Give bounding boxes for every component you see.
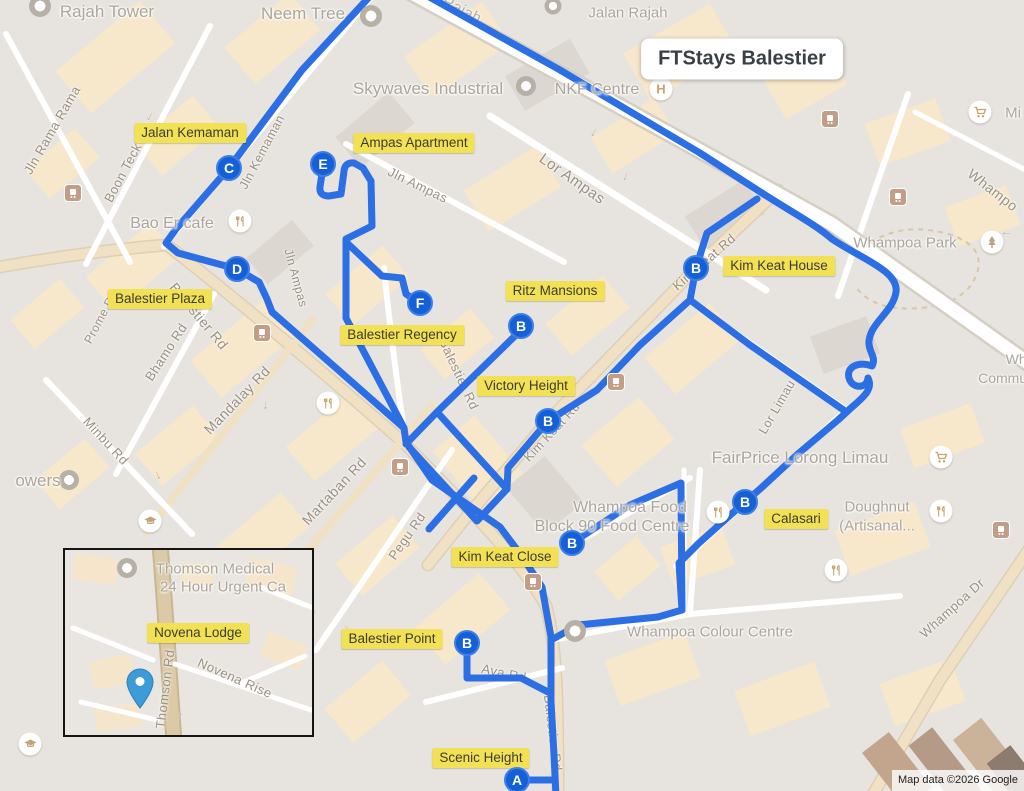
location-pin-icon[interactable] <box>125 668 155 710</box>
shopping-cart-pin-icon[interactable] <box>969 101 992 124</box>
route-marker-B-victory-height[interactable]: B <box>535 408 561 434</box>
map-canvas[interactable]: Rajah Jln Rama Rama Boon Teck Rd Jln Kem… <box>0 0 1024 791</box>
property-label-balestier-regency: Balestier Regency <box>340 325 464 345</box>
route-marker-C[interactable]: C <box>216 155 242 181</box>
poi-label-bao-er-cafe: Bao Er cafe <box>130 215 214 233</box>
restaurant-pin-icon[interactable] <box>707 501 730 524</box>
map-title-badge: FTStays Balestier <box>641 39 843 80</box>
property-label-kim-keat-close: Kim Keat Close <box>451 547 558 567</box>
route-marker-B-balestier-point[interactable]: B <box>454 630 480 656</box>
poi-label-whampoa-food-2: Block 90 Food Centre <box>535 518 690 536</box>
restaurant-pin-icon[interactable] <box>825 559 848 582</box>
bus-stop-icon[interactable] <box>607 373 625 391</box>
route-marker-B-calasari[interactable]: B <box>732 489 758 515</box>
route-marker-B-kim-keat-house[interactable]: B <box>683 255 709 281</box>
route-marker-B-kim-keat-close[interactable]: B <box>559 530 585 556</box>
poi-label-jalan-rajah: Jalan Rajah <box>588 5 667 22</box>
poi-label-fairprice: FairPrice Lorong Limau <box>712 448 889 468</box>
poi-label-community-2: Communit <box>978 370 1024 386</box>
route-marker-A-scenic-height[interactable]: A <box>504 767 530 791</box>
school-pin-icon[interactable] <box>19 733 42 756</box>
route-marker-E[interactable]: E <box>310 151 336 177</box>
restaurant-pin-icon[interactable] <box>317 392 340 415</box>
poi-label-neem-tree: Neem Tree <box>261 4 345 24</box>
poi-pin-icon[interactable] <box>117 558 137 578</box>
route-marker-B-ritz-mansions[interactable]: B <box>508 313 534 339</box>
poi-label-mi-fragment: Mi <box>1005 105 1021 122</box>
route-polyline <box>320 163 418 428</box>
property-label-balestier-plaza: Balestier Plaza <box>108 289 212 309</box>
hospital-pin-icon[interactable]: H <box>650 78 673 101</box>
property-label-ampas-apartment: Ampas Apartment <box>353 133 474 153</box>
poi-label-whampoa-colour: Whampoa Colour Centre <box>627 624 793 641</box>
poi-pin-icon[interactable] <box>360 5 382 27</box>
property-label-calasari: Calasari <box>764 509 828 529</box>
poi-label-towers-fragment: owers <box>15 471 60 491</box>
poi-label-doughnut-2: (Artisanal... <box>839 518 915 535</box>
poi-pin-icon[interactable] <box>564 620 586 642</box>
bus-stop-icon[interactable] <box>253 324 271 342</box>
inset-poi-thomson-medical-2: 24 Hour Urgent Ca <box>160 579 286 596</box>
bus-stop-icon[interactable] <box>391 458 409 476</box>
property-label-victory-height: Victory Height <box>477 376 575 396</box>
poi-label-whampoa-park: Whampoa Park <box>853 235 956 252</box>
route-marker-F[interactable]: F <box>407 290 433 316</box>
bus-stop-icon[interactable] <box>992 521 1010 539</box>
poi-label-skywaves: Skywaves Industrial <box>353 79 503 99</box>
property-label-kim-keat-house: Kim Keat House <box>723 256 835 276</box>
route-marker-D[interactable]: D <box>224 256 250 282</box>
poi-pin-icon[interactable] <box>59 470 79 490</box>
inset-map-novena[interactable]: Thomson Medical 24 Hour Urgent Ca Novena… <box>63 548 314 737</box>
poi-label-rajah-tower: Rajah Tower <box>60 2 154 22</box>
school-pin-icon[interactable] <box>139 510 162 533</box>
park-tree-pin-icon[interactable] <box>981 231 1004 254</box>
property-label-balestier-point: Balestier Point <box>341 629 442 649</box>
poi-label-nkf-centre: NKF Centre <box>555 81 639 99</box>
property-label-scenic-height: Scenic Height <box>432 748 529 768</box>
property-label-jalan-kemaman: Jalan Kemaman <box>134 123 246 143</box>
bus-stop-icon[interactable] <box>64 184 82 202</box>
map-attribution: Map data ©2026 Google <box>892 770 1024 791</box>
restaurant-pin-icon[interactable] <box>930 500 953 523</box>
poi-pin-icon[interactable] <box>516 76 536 96</box>
bus-stop-icon[interactable] <box>821 110 839 128</box>
shopping-cart-pin-icon[interactable] <box>930 446 953 469</box>
poi-label-community-1: Wha <box>1006 351 1024 367</box>
inset-poi-thomson-medical-1: Thomson Medical <box>156 561 274 578</box>
poi-label-whampoa-food-1: Whampoa Food <box>573 499 687 517</box>
bus-stop-icon[interactable] <box>524 573 542 591</box>
restaurant-pin-icon[interactable] <box>229 210 252 233</box>
poi-label-doughnut-1: Doughnut <box>844 499 909 516</box>
property-label-novena-lodge: Novena Lodge <box>147 623 249 643</box>
one-way-arrow-icon: ↑ <box>177 708 184 723</box>
bus-stop-icon[interactable] <box>889 188 907 206</box>
property-label-ritz-mansions: Ritz Mansions <box>506 281 605 301</box>
